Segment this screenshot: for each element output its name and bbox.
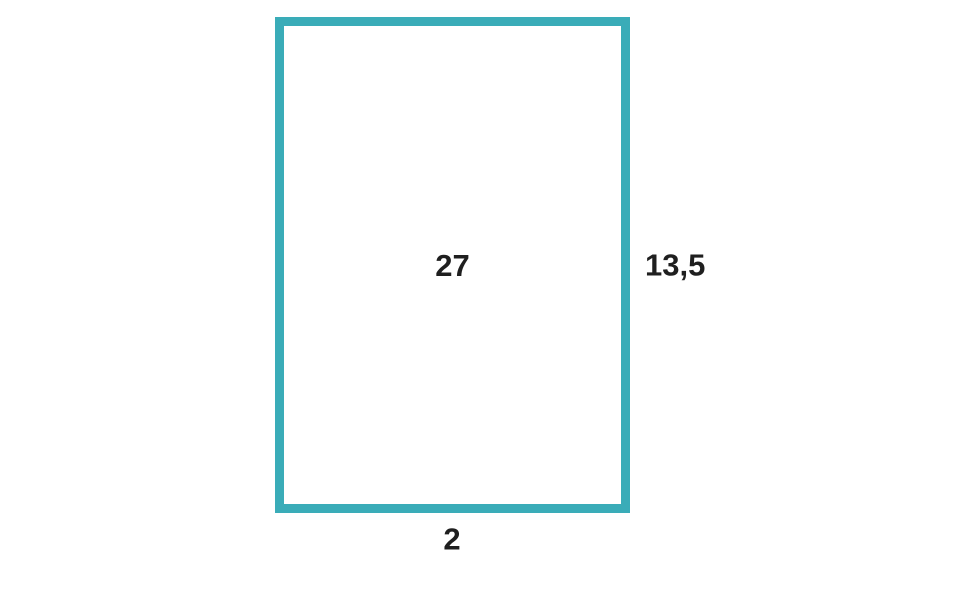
center-label: 27 (435, 250, 469, 281)
right-side-label: 13,5 (645, 250, 705, 281)
diagram-canvas: 27 13,5 2 (0, 0, 960, 600)
bottom-side-label: 2 (443, 524, 460, 555)
rectangle-shape: 27 (275, 17, 630, 513)
